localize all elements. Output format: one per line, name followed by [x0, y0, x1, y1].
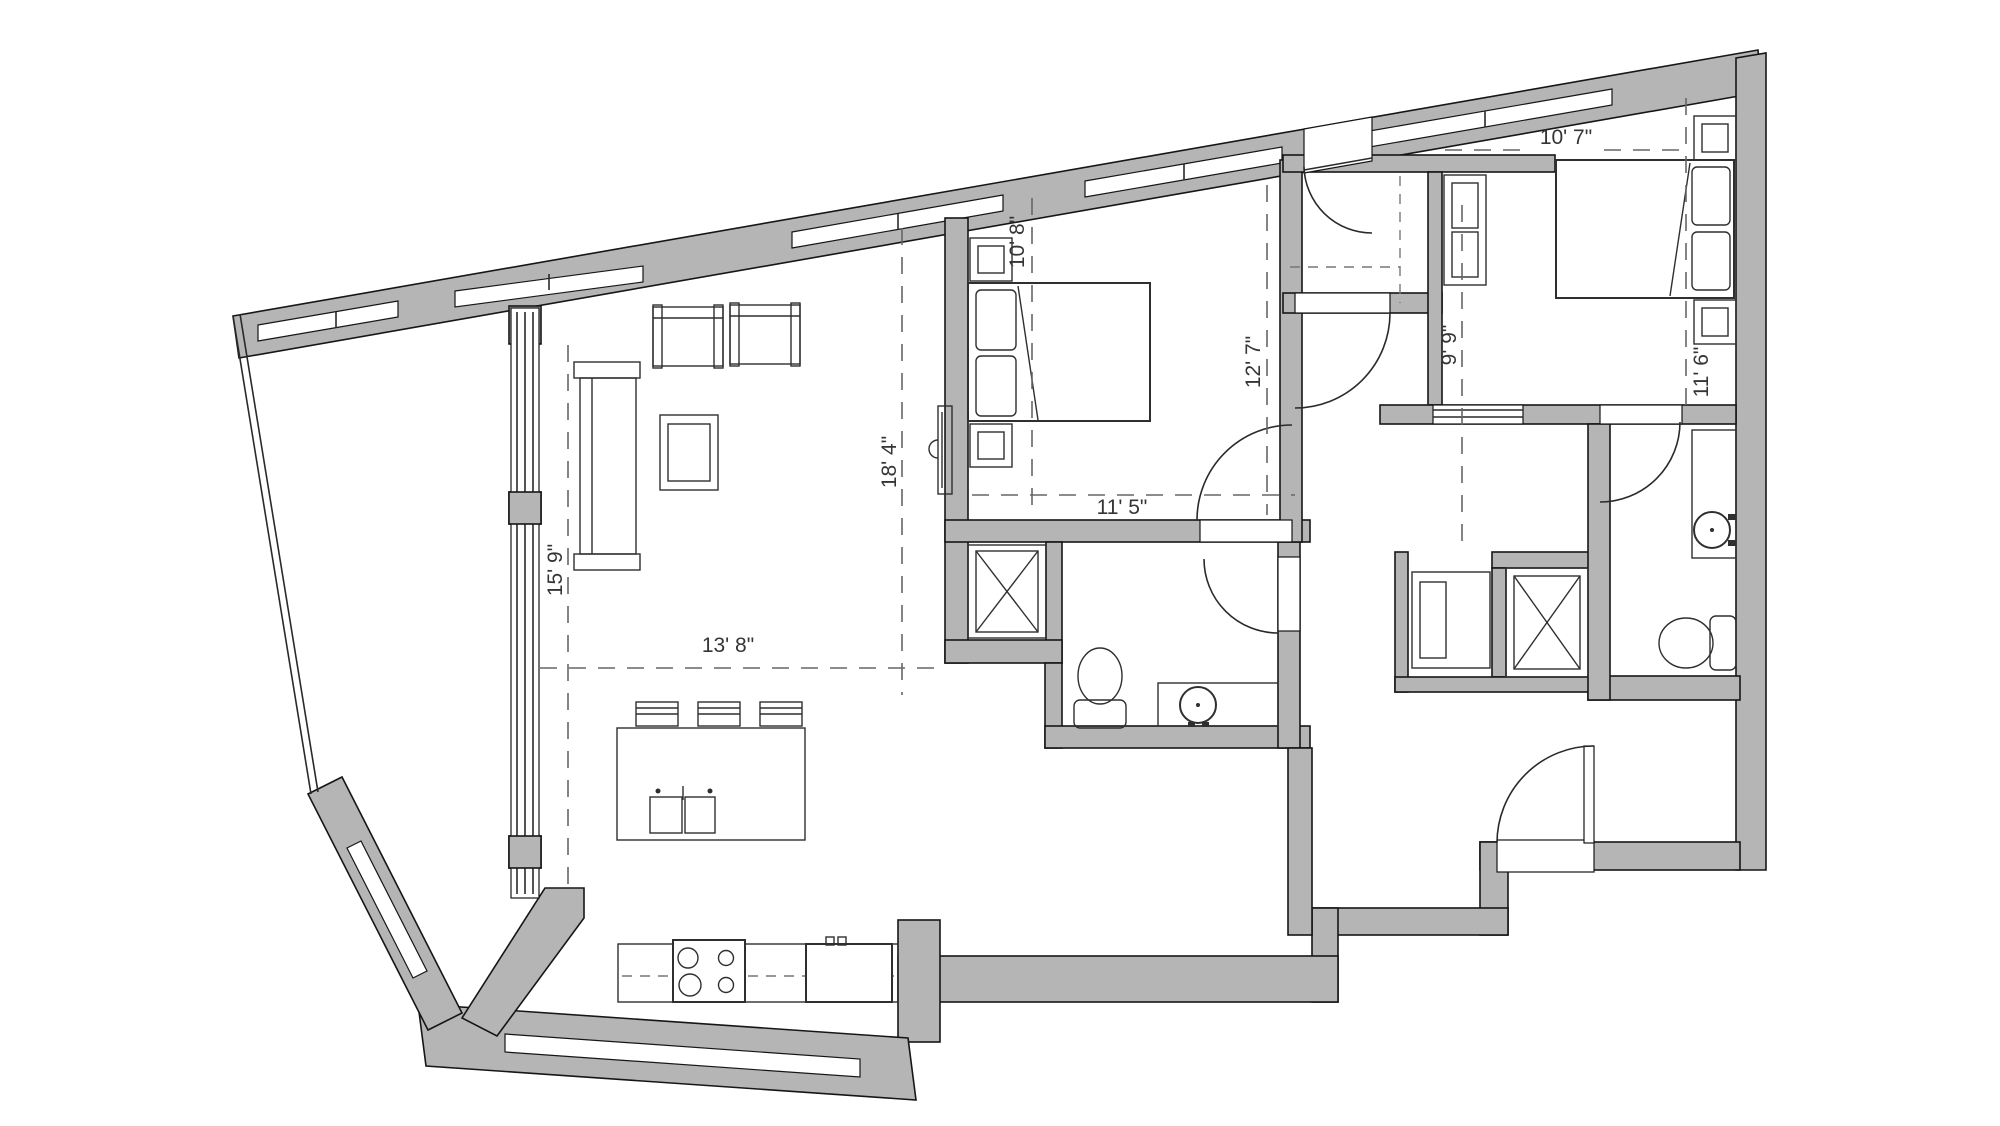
faucet-icon: [1202, 722, 1209, 727]
bathroom2-door: [1600, 405, 1682, 502]
refrigerator-icon: [806, 937, 892, 1002]
faucet-icon: [1188, 722, 1195, 727]
dim-label-bedroom2-height: 12' 7": [1242, 336, 1265, 388]
wall-bath2-west: [1588, 424, 1610, 700]
vanity-counter: [1158, 683, 1278, 726]
armchair-icon: [730, 303, 800, 366]
wall-kitchen-east-stub: [898, 920, 940, 1042]
shaft-closet-icon: [1506, 568, 1588, 677]
dim-label-living-width: 15' 9": [544, 544, 567, 596]
wall-laundry-south: [1395, 677, 1600, 692]
bedroom1-opening: [1433, 405, 1523, 424]
window-post-icon: [509, 836, 541, 868]
vanity-sink: [1158, 683, 1278, 727]
wall-bedroom2-west: [945, 218, 968, 663]
wall-right: [1736, 53, 1766, 870]
door-swing-arc: [1295, 313, 1390, 408]
bed-icon: [1556, 160, 1734, 298]
toilet-icon: [1659, 616, 1736, 670]
door-swing-arc: [1304, 167, 1372, 233]
bar-stool-icon: [636, 702, 678, 726]
back-door: [1497, 746, 1594, 872]
dim-label-hall-width: 9' 9": [1438, 325, 1461, 366]
floor-plan-page: 15' 9" 13' 8" 18' 4" 10' 8" 11' 5" 12' 7…: [0, 0, 2000, 1126]
dim-label-bedroom1-length: 11' 6": [1690, 347, 1713, 398]
dim-label-living-length: 18' 4": [878, 436, 901, 488]
dim-label-bedroom2-width: 10' 8": [1006, 216, 1029, 268]
bar-stool-icon: [760, 702, 802, 726]
faucet-dot: [708, 789, 713, 794]
window-post-icon: [509, 492, 541, 524]
faucet-icon: [1728, 540, 1736, 546]
closet-door: [1295, 293, 1390, 408]
wall-closet-east: [1428, 172, 1442, 405]
faucet-dot: [656, 789, 661, 794]
toilet-icon: [1074, 648, 1126, 728]
entry-door: [1304, 117, 1372, 233]
dim-label-living-depth: 13' 8": [702, 634, 754, 657]
washer-dryer-icon: [1412, 572, 1490, 668]
nightstand-icon: [970, 424, 1012, 467]
sofa-icon: [574, 362, 640, 570]
wall-laundry-west: [1395, 552, 1408, 692]
sink-icon: [685, 797, 715, 833]
wall-dining-east: [1288, 748, 1312, 935]
bathroom-1: [1074, 648, 1278, 728]
wall-bath2-south: [1588, 676, 1740, 700]
door-swing-arc: [1204, 559, 1278, 633]
wall-laundry-mid: [1492, 568, 1506, 677]
armchair-icon: [653, 305, 723, 368]
wall-closetA-south: [945, 640, 1062, 663]
kitchen: [617, 702, 898, 1002]
wall-hall-west: [1280, 160, 1302, 542]
bed-icon: [968, 283, 1150, 421]
wall-laundry-north: [1492, 552, 1600, 568]
window-icon: [347, 841, 427, 978]
balcony-railing: [233, 314, 318, 794]
sink-icon: [650, 797, 682, 833]
wall-bath1-south: [1045, 726, 1310, 748]
door-swing-arc: [1497, 746, 1594, 843]
door-swing-arc: [1197, 425, 1292, 520]
bedroom-2: [968, 238, 1150, 467]
nightstand-icon: [1694, 116, 1736, 160]
dim-label-bedroom1-width: 10' 7": [1540, 126, 1592, 149]
range-icon: [673, 940, 745, 1002]
nightstand-icon: [1694, 300, 1736, 344]
dresser-icon: [1444, 175, 1486, 285]
wall-bottom-mid: [1312, 908, 1508, 935]
faucet-icon: [1728, 514, 1736, 520]
dim-label-bedroom2-length: 11' 5": [1097, 496, 1148, 519]
floor-plan: 15' 9" 13' 8" 18' 4" 10' 8" 11' 5" 12' 7…: [0, 0, 2000, 1126]
kitchen-island-icon: [617, 728, 805, 840]
bathroom-2: [1659, 430, 1736, 670]
bathroom1-door: [1204, 557, 1300, 633]
bedroom2-door: [1197, 425, 1292, 542]
door-swing-arc: [1600, 422, 1680, 502]
coffee-table-icon: [660, 415, 718, 490]
bar-stool-icon: [698, 702, 740, 726]
shaft-closet-icon: [968, 545, 1046, 638]
window-wall-west: [509, 308, 541, 898]
vanity-sink: [1692, 430, 1736, 558]
wall-dining-south: [898, 956, 1338, 1002]
